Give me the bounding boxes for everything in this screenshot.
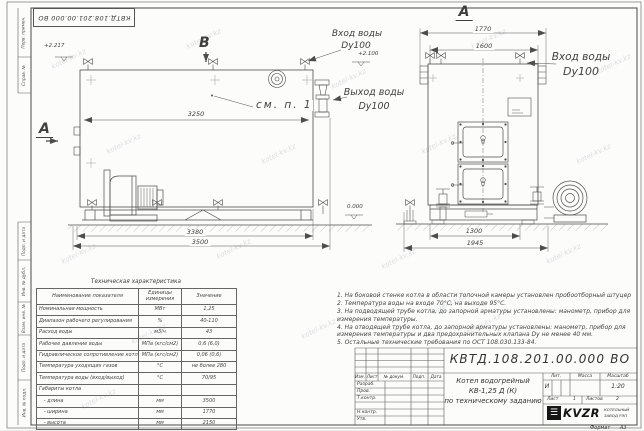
top-stamp-text: КВТД.108.201.00.000 ВО xyxy=(38,14,130,22)
table-cell: 1770 xyxy=(182,407,237,418)
note-line: 3. На подводящей трубе котла, до запорно… xyxy=(337,308,635,323)
note-line: 5. Остальные технические требования по О… xyxy=(337,339,635,346)
mass-header: Масса xyxy=(578,375,592,380)
table-cell: Температура воды (вход/выход) xyxy=(37,373,139,384)
table-cell: м3/ч xyxy=(139,327,182,338)
table-cell: Номинальная мощность xyxy=(37,305,139,316)
sig-nkontr: Н.контр. xyxy=(357,411,377,416)
table-cell: °С xyxy=(139,373,182,384)
table-cell xyxy=(139,384,182,395)
dimension-lines xyxy=(73,28,548,252)
kvzr-logo-icon: ☰ xyxy=(547,406,561,420)
side-view-drawing xyxy=(68,70,372,232)
table-cell xyxy=(182,384,237,395)
dim-1945: 1945 xyxy=(465,240,486,247)
see-note-callout: см. п. 1 xyxy=(256,100,313,111)
front-view-drawing xyxy=(396,58,608,231)
frame-cell-podp-data-2: Подп. и дата xyxy=(18,335,31,380)
note-line: 2. Температура воды на входе 70°С, на вы… xyxy=(337,300,635,307)
table-cell: не более 280 xyxy=(182,361,237,372)
dim-1770: 1770 xyxy=(473,26,494,33)
drawing-sheet: kotel-kv.kz kotel-kv.kz kotel-kv.kz kote… xyxy=(0,0,644,430)
table-cell: Расход воды xyxy=(37,327,139,338)
table-cell: 0,06 (0,6) xyxy=(182,350,237,361)
dim-3250: 3250 xyxy=(186,111,207,118)
product-name-line2: КВ-1,25 Д (К) xyxy=(469,388,517,395)
table-cell: МВт xyxy=(139,305,182,316)
table-cell: мм xyxy=(139,396,182,407)
inlet-water-dn-side: Dy100 xyxy=(341,42,370,51)
table-header: Единицы измерения xyxy=(139,289,182,305)
sig-prov: Пров. xyxy=(357,390,370,395)
frame-cell-sprav-no: Справ. № xyxy=(18,57,31,93)
table-cell: 40-110 xyxy=(182,316,237,327)
frame-cell-podp-data-1: Подп. и дата xyxy=(18,222,31,260)
table-cell: Рабочее давление воды xyxy=(37,339,139,350)
table-cell: - длина xyxy=(37,396,139,407)
dim-3380: 3380 xyxy=(185,229,206,236)
col-list: Лист xyxy=(367,375,378,379)
table-cell: 0,6 (6,0) xyxy=(182,339,237,350)
table-cell: Диапазон рабочего регулирования xyxy=(37,316,139,327)
frame-cell-perv-primen: Перв. примен. xyxy=(18,8,31,57)
sheets-label: Листов xyxy=(586,398,603,403)
sig-tkontr: Т.контр. xyxy=(357,397,377,402)
product-name-line1: Котел водогрейный xyxy=(456,378,530,385)
col-podp: Подп. xyxy=(413,375,426,379)
table-cell: Температура уходящих газов xyxy=(37,361,139,372)
level-mark-top: +2.217 xyxy=(44,44,64,50)
technical-notes: 1. На боковой стенке котла в области топ… xyxy=(337,292,635,347)
note-line: 4. На отводящей трубе котла, до запорной… xyxy=(337,324,635,339)
lit-header: Лит. xyxy=(551,375,561,380)
section-b-label: В xyxy=(199,36,210,50)
product-name-line3: по техническому заданию xyxy=(444,398,541,405)
inlet-water-dn-front: Dy100 xyxy=(563,66,599,77)
table-cell: МПа (кгс/см2) xyxy=(139,350,182,361)
dim-1600: 1600 xyxy=(474,43,495,50)
table-cell: Гидравлическое сопротивление котла xyxy=(37,350,139,361)
front-view-title: А xyxy=(456,5,473,21)
inlet-water-label-side: Вход воды xyxy=(332,30,382,39)
table-cell: МПа (кгс/см2) xyxy=(139,339,182,350)
sig-utv: Утв. xyxy=(357,418,366,423)
lit-value: И xyxy=(545,384,550,390)
section-a-label: А xyxy=(36,122,53,138)
table-header: Значение xyxy=(182,289,237,305)
table-cell: % xyxy=(139,316,182,327)
table-cell: - ширина xyxy=(37,407,139,418)
table-cell: мм xyxy=(139,418,182,429)
table-cell: - высота xyxy=(37,418,139,429)
titleblock-doc-number: КВТД.108.201.00.000 ВО xyxy=(450,353,631,365)
table-cell: 1,25 xyxy=(182,305,237,316)
sheet-value: 1 xyxy=(573,398,576,403)
table-title: Техническая характеристика xyxy=(91,280,181,286)
top-stamp-box: КВТД.108.201.00.000 ВО xyxy=(33,8,135,27)
table-cell: мм xyxy=(139,407,182,418)
logo-sub2: ЗАВОД РЭП xyxy=(604,414,627,418)
table-cell: °С xyxy=(139,361,182,372)
col-izm: Изм. xyxy=(355,375,365,379)
table-cell: Габариты котла xyxy=(37,384,139,395)
logo-sub1: КОТЕЛЬНЫЙ xyxy=(604,408,629,412)
tech-characteristics-table: Наименование показателя Единицы измерени… xyxy=(36,288,237,430)
outlet-water-label: Выход воды xyxy=(344,88,405,98)
col-data: Дата xyxy=(431,375,442,379)
dim-3500: 3500 xyxy=(190,239,211,246)
scale-value: 1:20 xyxy=(611,384,624,390)
outlet-water-dn: Dy100 xyxy=(358,102,389,112)
kvzr-logo-text: KVZR xyxy=(563,408,600,420)
dim-1300: 1300 xyxy=(464,228,485,235)
sig-razrab: Разраб. xyxy=(357,383,375,388)
scale-header: Масштаб xyxy=(607,375,628,380)
frame-cell-inv-dubl: Инв. № дубл. xyxy=(18,260,31,302)
table-cell: 2150 xyxy=(182,418,237,429)
sheet-label: Лист xyxy=(547,398,558,403)
valve-symbols xyxy=(84,53,525,222)
table-header: Наименование показателя xyxy=(37,289,139,305)
inlet-water-label-front: Вход воды xyxy=(552,52,611,63)
sheets-value: 2 xyxy=(616,398,619,403)
level-mark-inlet: +2.100 xyxy=(358,52,378,58)
col-dokum: № докум. xyxy=(384,375,405,379)
frame-cell-inv-podl: Инв. № подл. xyxy=(18,380,31,425)
note-line: 1. На боковой стенке котла в области топ… xyxy=(337,292,635,299)
frame-cell-vzam-inv: Взам. инв. № xyxy=(18,302,31,335)
level-mark-zero: 0.000 xyxy=(347,205,363,211)
table-cell: 3500 xyxy=(182,396,237,407)
table-cell: 70/95 xyxy=(182,373,237,384)
table-cell: 43 xyxy=(182,327,237,338)
leader-lines xyxy=(46,50,556,219)
